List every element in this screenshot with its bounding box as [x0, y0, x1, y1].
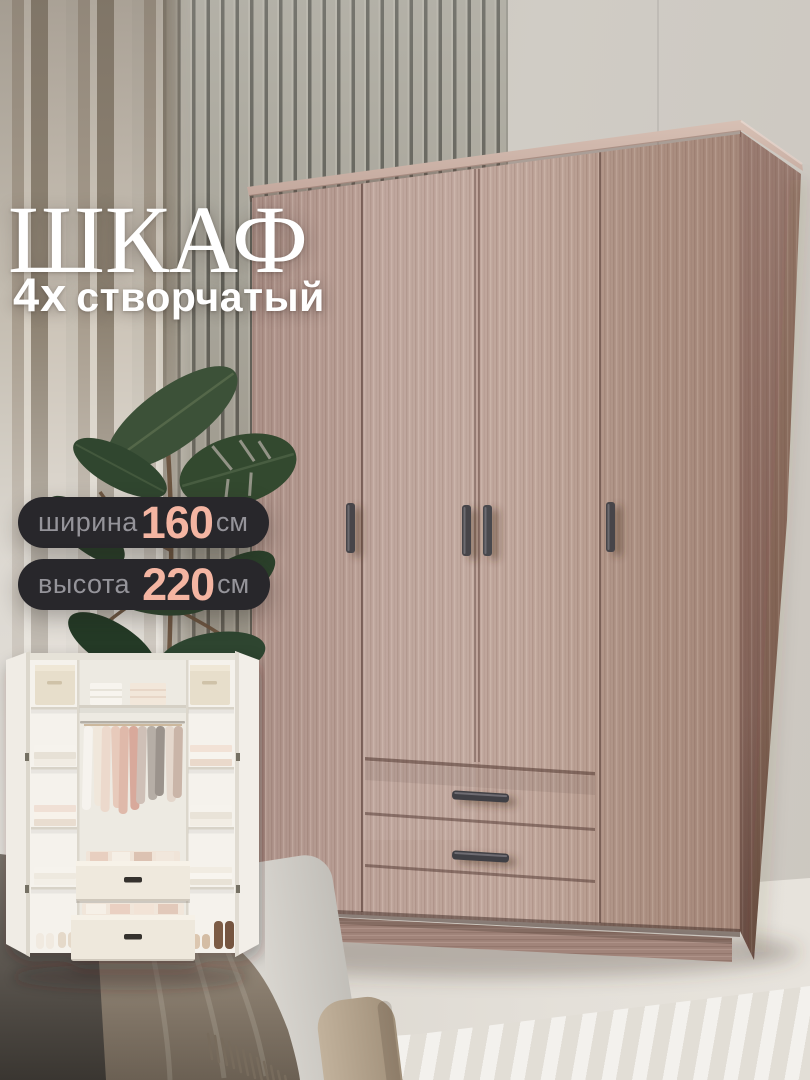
width-unit: см — [216, 507, 248, 538]
width-value: 160 — [141, 497, 213, 549]
height-label: высота — [38, 569, 130, 600]
wall-trim-line — [506, 0, 508, 905]
wardrobe-side-panel — [740, 131, 801, 960]
height-unit: см — [217, 569, 249, 600]
wall-seam-line — [657, 0, 659, 200]
product-card: ШКАФ 4хстворчатый ширина 160 см высота 2… — [0, 0, 810, 1080]
product-subtitle: 4хстворчатый — [13, 272, 325, 330]
height-value: 220 — [142, 559, 214, 611]
slat-wall-panel — [152, 0, 508, 905]
width-badge: ширина 160 см — [18, 497, 269, 548]
height-badge: высота 220 см — [18, 559, 270, 610]
curtains — [0, 0, 196, 905]
subtitle-door-count: 4х — [13, 268, 67, 321]
subtitle-word: створчатый — [76, 274, 325, 320]
width-label: ширина — [38, 507, 138, 538]
